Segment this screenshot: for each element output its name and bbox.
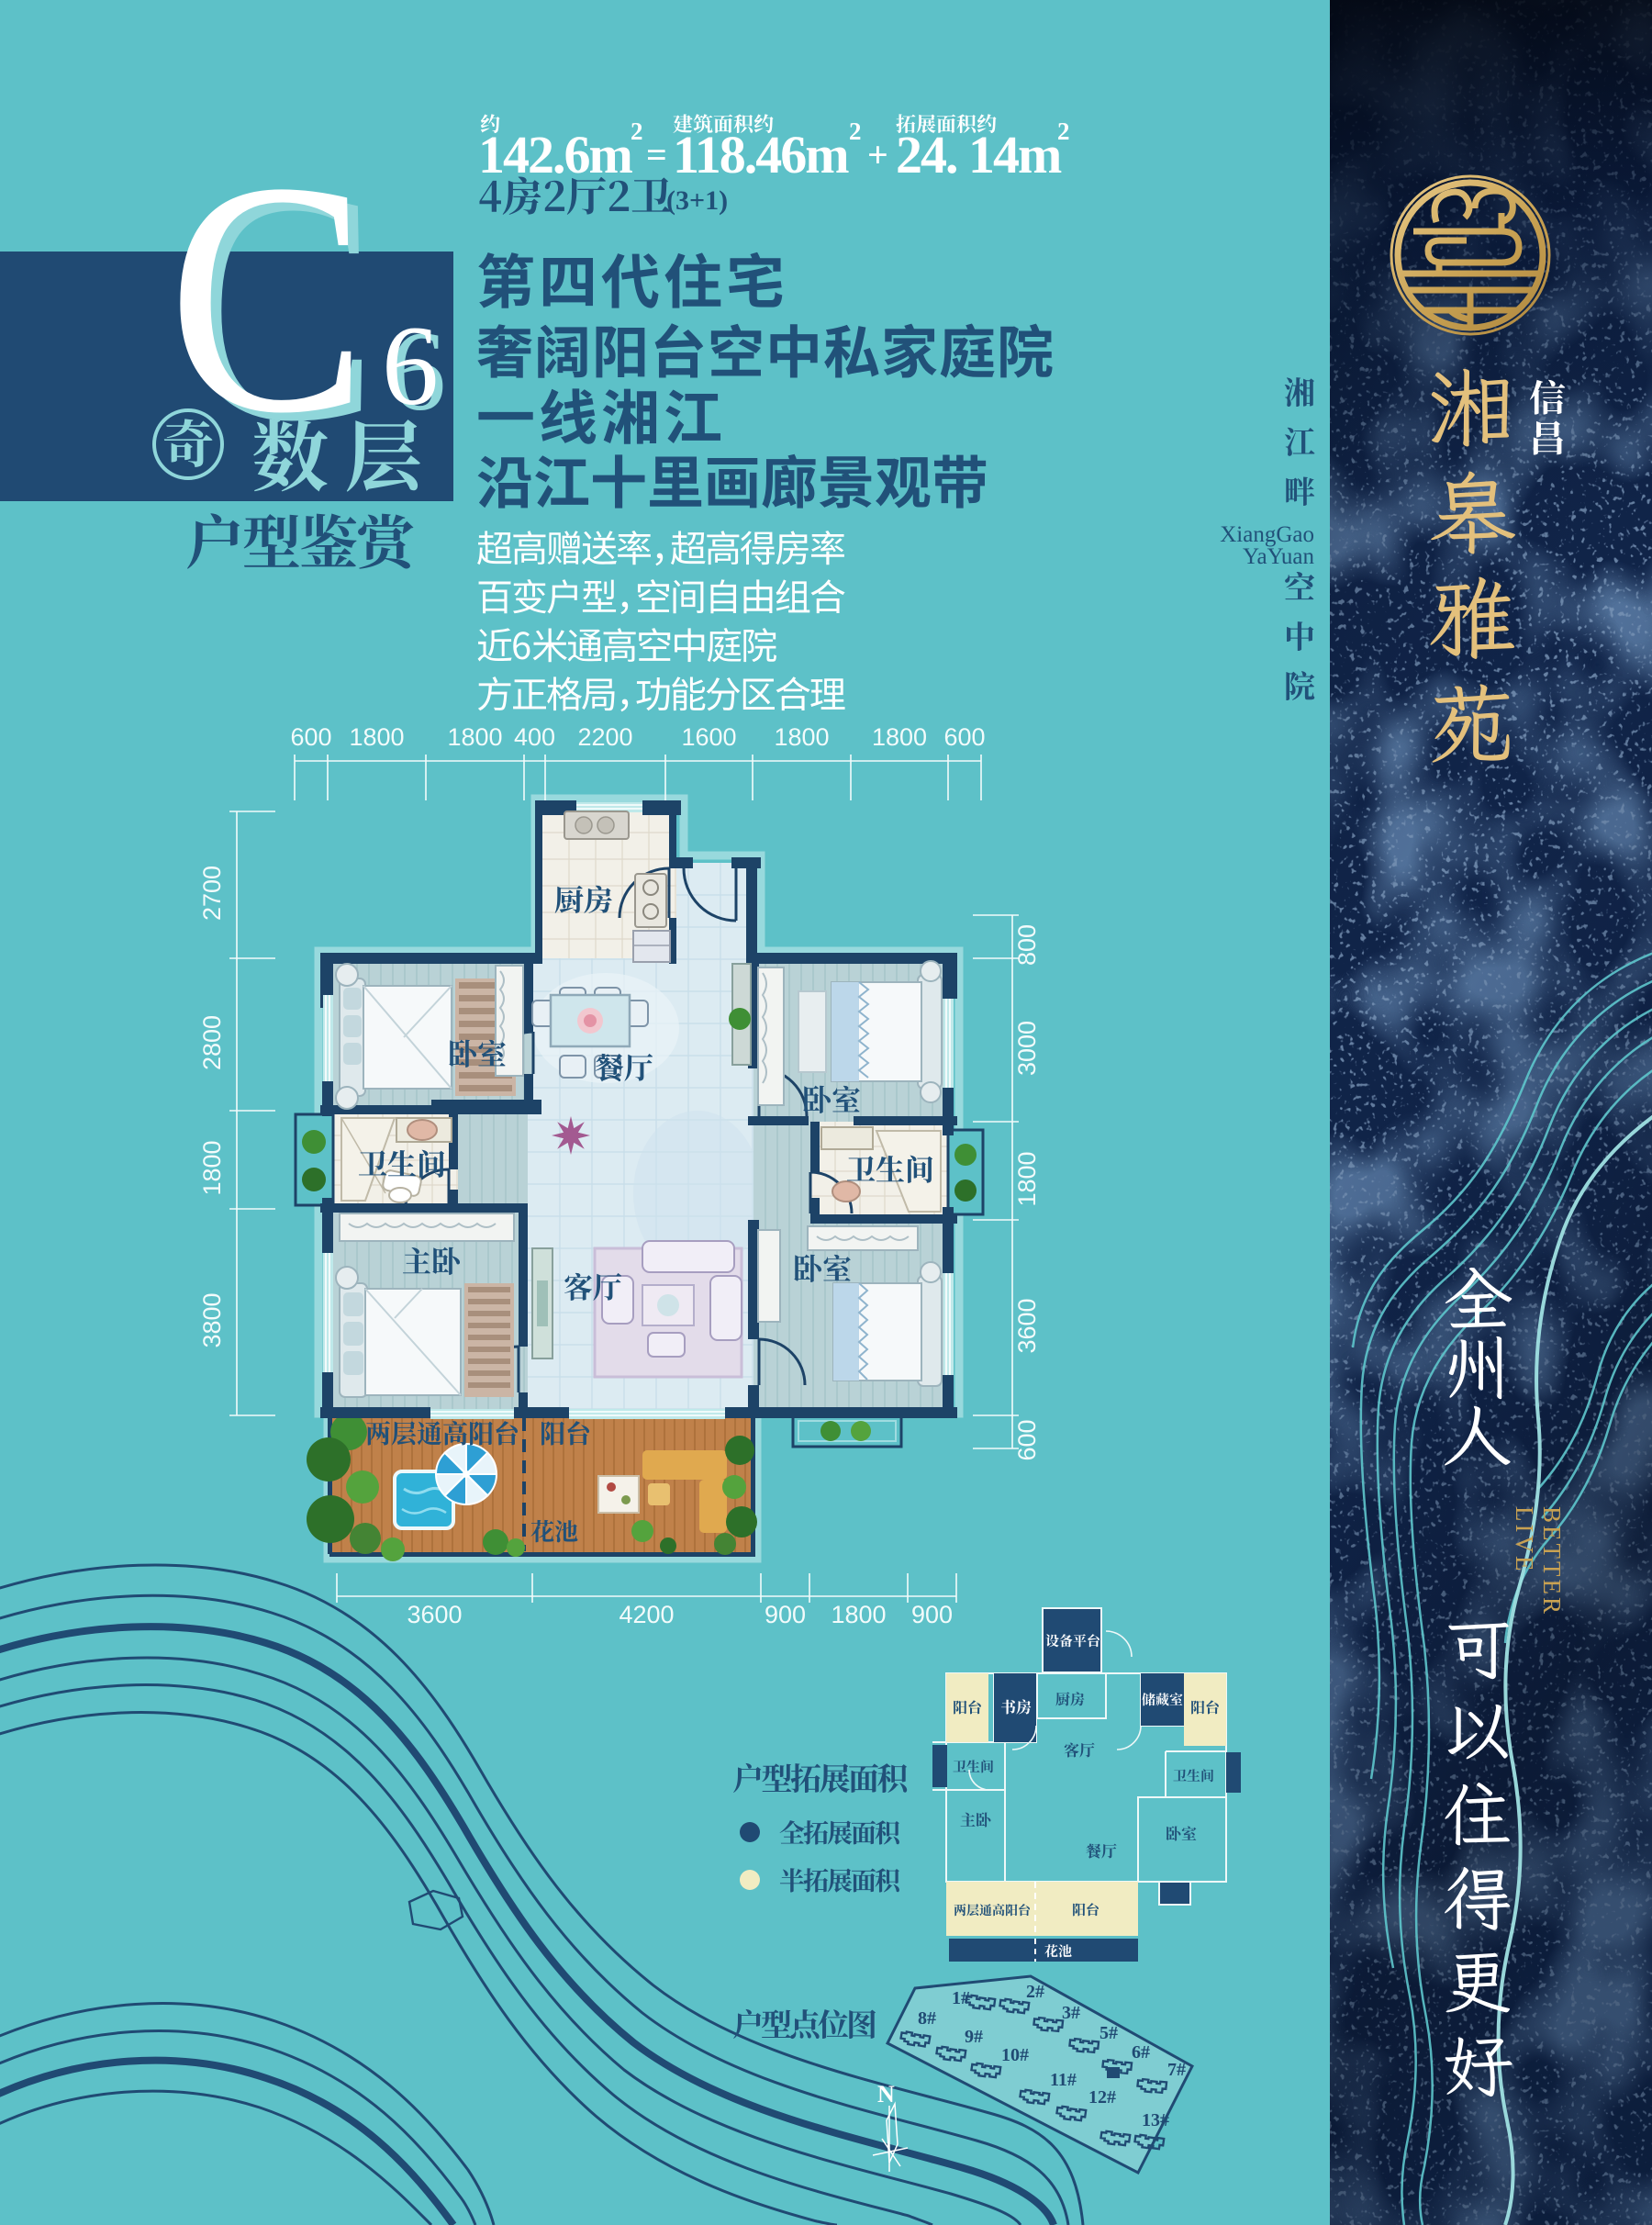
svg-text:9#: 9# [965, 2027, 983, 2047]
svg-text:10#: 10# [1001, 2045, 1029, 2065]
svg-text:1800: 1800 [774, 723, 829, 751]
svg-text:XiangGao: XiangGao [1220, 522, 1314, 547]
svg-text:12#: 12# [1088, 2087, 1116, 2108]
svg-text:600: 600 [943, 723, 985, 751]
svg-text:2200: 2200 [577, 723, 632, 751]
svg-text:2#: 2# [1026, 1982, 1044, 2002]
svg-text:2: 2 [1057, 117, 1070, 145]
svg-text:24. 14m: 24. 14m [896, 125, 1062, 184]
svg-text:BETTER: BETTER [1538, 1506, 1566, 1616]
svg-text:3600: 3600 [407, 1601, 462, 1628]
svg-text:(3+1): (3+1) [666, 185, 728, 216]
svg-text:LIVE: LIVE [1511, 1506, 1538, 1573]
svg-text:6: 6 [382, 303, 439, 429]
svg-text:1#: 1# [952, 1988, 970, 2008]
svg-text:1800: 1800 [1013, 1151, 1041, 1206]
svg-text:1800: 1800 [831, 1601, 886, 1628]
svg-text:118.46m: 118.46m [673, 125, 849, 184]
svg-text:600: 600 [1013, 1419, 1041, 1460]
svg-text:3#: 3# [1062, 2003, 1080, 2023]
svg-text:142.6m: 142.6m [478, 125, 633, 184]
svg-text:11#: 11# [1050, 2070, 1077, 2090]
svg-text:7#: 7# [1167, 2060, 1186, 2080]
svg-text:=: = [646, 134, 667, 175]
svg-text:2: 2 [631, 117, 643, 145]
svg-text:YaYuan: YaYuan [1243, 544, 1315, 569]
svg-text:2800: 2800 [198, 1015, 226, 1070]
svg-text:N: N [877, 2081, 895, 2108]
svg-text:1800: 1800 [872, 723, 927, 751]
svg-text:2: 2 [849, 117, 862, 145]
svg-text:1800: 1800 [447, 723, 502, 751]
svg-text:1800: 1800 [349, 723, 404, 751]
svg-text:3000: 3000 [1013, 1021, 1041, 1076]
svg-text:900: 900 [911, 1601, 953, 1628]
svg-text:3800: 3800 [198, 1292, 226, 1347]
svg-text:800: 800 [1013, 924, 1041, 966]
svg-text:2700: 2700 [198, 866, 226, 921]
svg-text:3600: 3600 [1013, 1298, 1041, 1353]
svg-text:600: 600 [290, 723, 331, 751]
svg-text:+: + [867, 134, 888, 175]
svg-text:400: 400 [514, 723, 555, 751]
svg-text:6#: 6# [1132, 2042, 1150, 2063]
svg-text:5#: 5# [1099, 2023, 1118, 2043]
svg-text:1800: 1800 [198, 1140, 226, 1195]
svg-text:900: 900 [765, 1601, 806, 1628]
svg-text:1600: 1600 [681, 723, 736, 751]
svg-text:13#: 13# [1142, 2110, 1169, 2130]
svg-text:4200: 4200 [619, 1601, 674, 1628]
svg-text:8#: 8# [918, 2008, 936, 2029]
